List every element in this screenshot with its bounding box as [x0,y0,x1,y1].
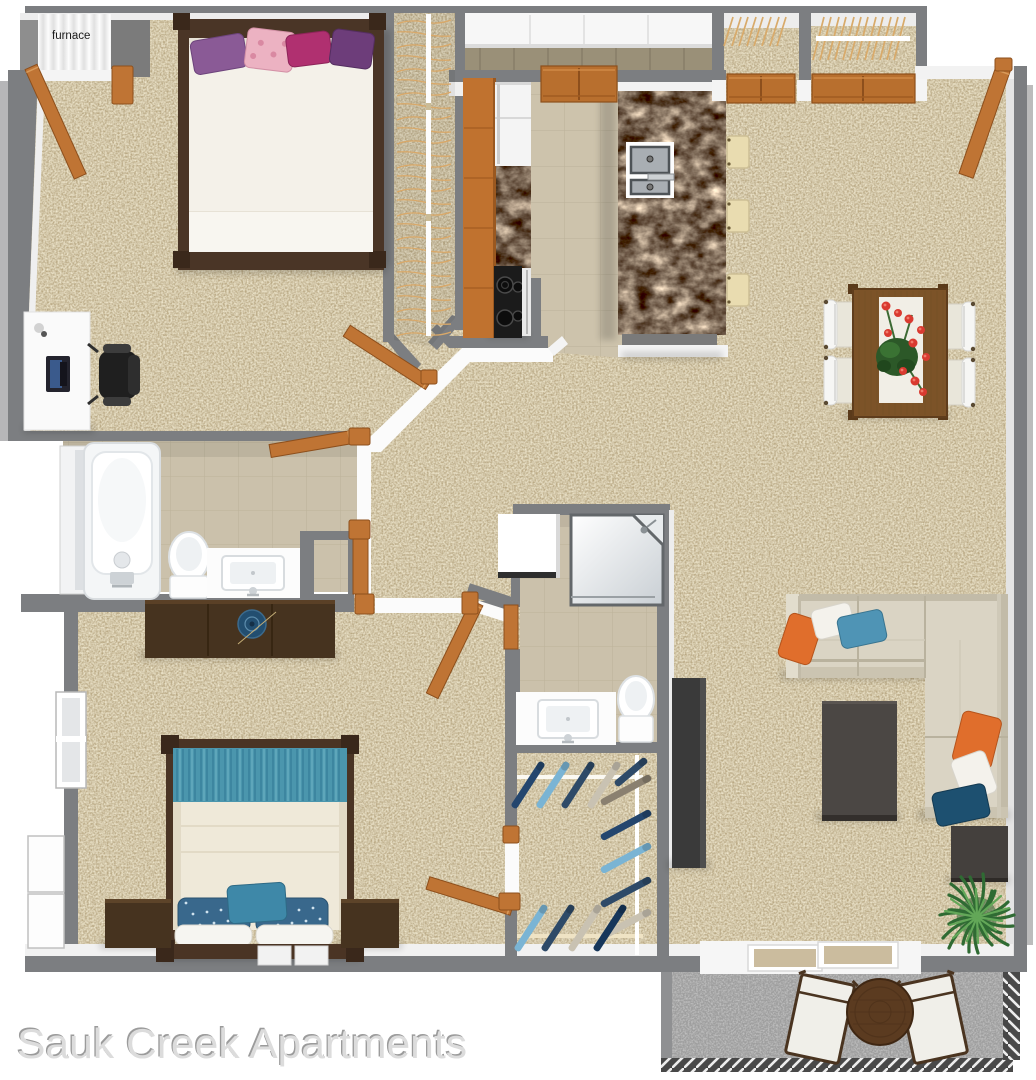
svg-text:Sauk Creek Apartments: Sauk Creek Apartments [17,1020,467,1067]
svg-text:furnace: furnace [52,30,90,42]
